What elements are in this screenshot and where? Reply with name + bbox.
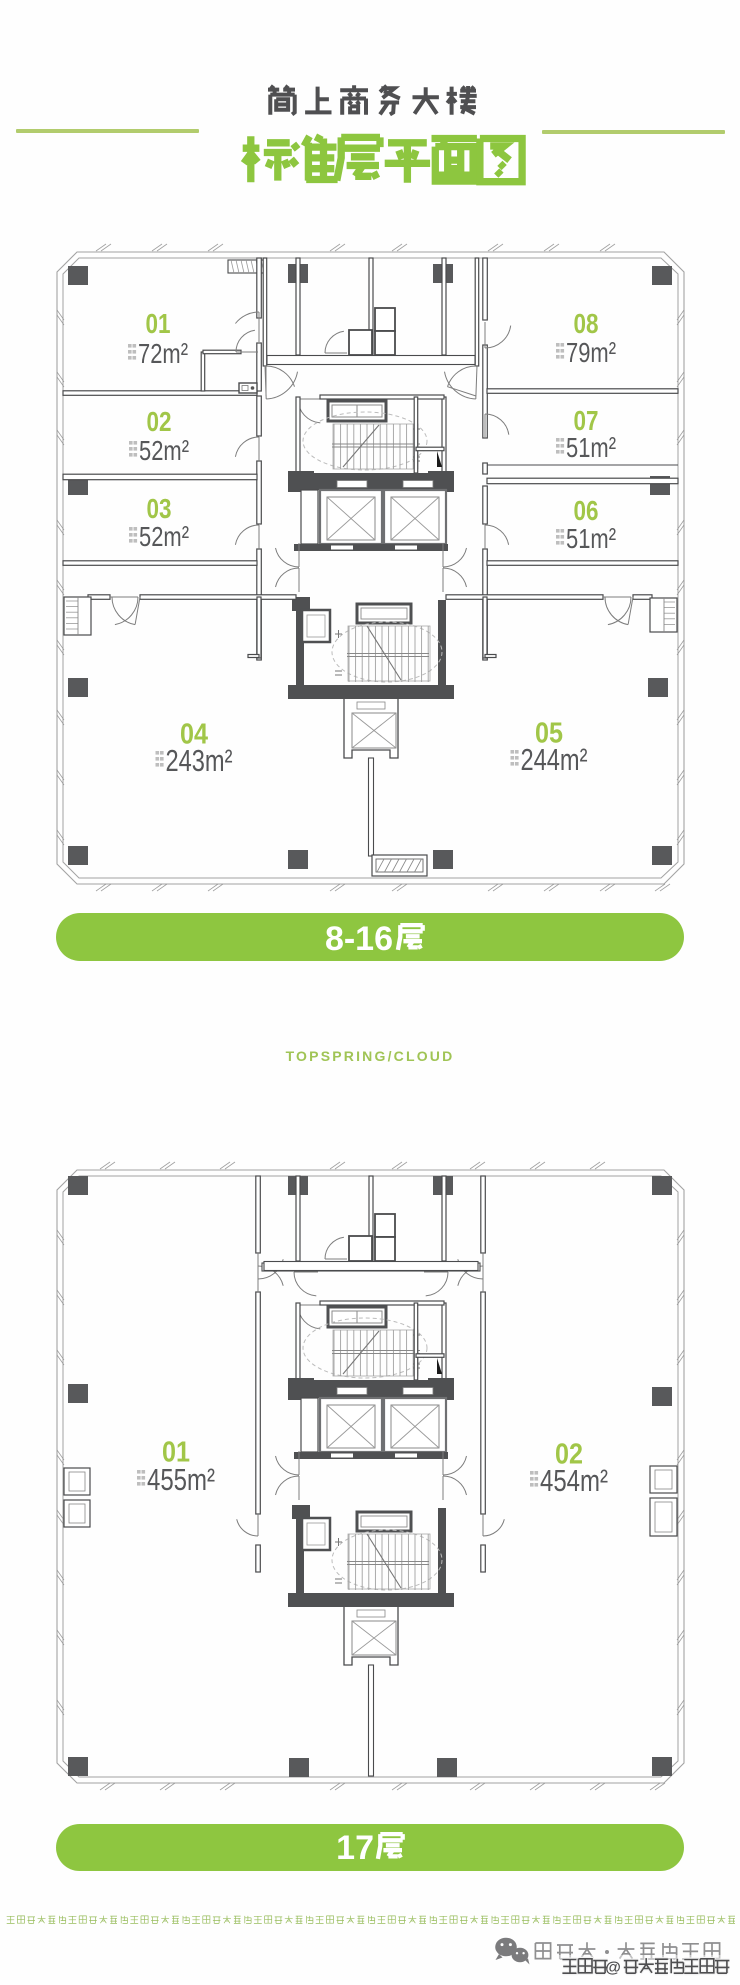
svg-text:08: 08 [574, 308, 599, 339]
svg-text:52m²: 52m² [139, 435, 189, 466]
svg-text:01: 01 [146, 308, 171, 339]
svg-text:72m²: 72m² [138, 338, 188, 369]
svg-text:TOPSPRING/CLOUD: TOPSPRING/CLOUD [286, 1048, 455, 1064]
svg-text:17: 17 [336, 1829, 374, 1867]
svg-text:79m²: 79m² [566, 337, 616, 368]
svg-text:243m²: 243m² [166, 743, 233, 778]
svg-text:455m²: 455m² [147, 1462, 215, 1497]
svg-text:244m²: 244m² [521, 742, 588, 777]
svg-text:51m²: 51m² [566, 523, 616, 554]
svg-text:52m²: 52m² [139, 521, 189, 552]
svg-text:@: @ [605, 1960, 621, 1977]
svg-text:03: 03 [147, 493, 172, 524]
svg-text:454m²: 454m² [540, 1463, 608, 1498]
svg-text:51m²: 51m² [566, 432, 616, 463]
svg-text:02: 02 [147, 406, 172, 437]
svg-text:8-16: 8-16 [325, 920, 393, 958]
svg-text:06: 06 [574, 495, 599, 526]
